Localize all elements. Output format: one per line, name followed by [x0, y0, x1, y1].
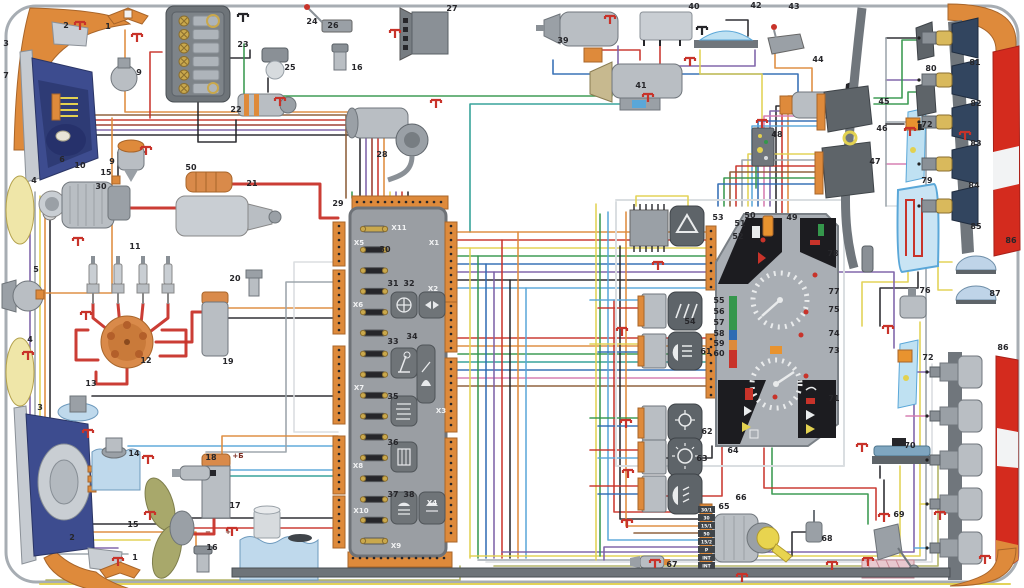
pin — [443, 557, 446, 560]
pin — [917, 36, 920, 39]
plug-terminal — [116, 256, 120, 264]
callout-21-starter: 21 — [246, 179, 258, 188]
pin — [356, 201, 359, 204]
terminal-label-50: 50 — [703, 532, 709, 538]
callout-33-relay: 33 — [387, 337, 398, 346]
pin — [338, 419, 341, 422]
callout-79-heated-rear-window: 79 — [921, 176, 933, 185]
pin — [450, 281, 453, 284]
pin — [338, 391, 341, 394]
pin — [450, 239, 453, 242]
callout-31-relay: 31 — [387, 279, 399, 288]
callout-73-gauge: 73 — [828, 346, 839, 355]
callout-9-sensor: 9 — [109, 157, 115, 166]
connector-label-X8: X8 — [353, 462, 363, 470]
text-label: +Б — [232, 452, 243, 460]
callout-2-front-parking-lamp: 2 — [69, 533, 75, 542]
pin — [338, 453, 341, 456]
fuse-end — [360, 518, 365, 523]
pin — [338, 534, 341, 537]
horn-disc-1 — [6, 176, 34, 244]
callout-23-fuse-box: 23 — [237, 40, 248, 49]
pin — [450, 476, 453, 479]
bulb — [936, 115, 952, 129]
pin — [338, 499, 341, 502]
pin — [338, 280, 341, 283]
plug-terminal — [166, 256, 170, 264]
pin — [710, 286, 713, 289]
callout-1-underhood-lamp: 1 — [105, 22, 111, 31]
pin — [925, 502, 928, 505]
terminal-label-15/1: 15/1 — [701, 524, 712, 530]
connector-label-X6: X6 — [353, 301, 363, 309]
callout-55-telltale: 55 — [713, 296, 725, 305]
pin — [338, 246, 341, 249]
pin — [352, 557, 355, 560]
callout-65-fog-lamp-switch: 65 — [718, 502, 730, 511]
plug-terminal — [141, 256, 145, 264]
pin — [925, 370, 928, 373]
callout-72-side-repeater: 72 — [921, 120, 932, 129]
pin — [710, 338, 713, 341]
fuse-end — [382, 414, 387, 419]
callout-84-bulb: 84 — [968, 181, 980, 190]
callout-2-front-parking-lamp: 2 — [63, 21, 69, 30]
pin — [429, 557, 432, 560]
pin — [419, 201, 422, 204]
pin — [338, 467, 341, 470]
callout-38-relay: 38 — [403, 490, 415, 499]
callout-30-terminal-30: 30 — [95, 182, 107, 191]
callout-43-switch: 43 — [788, 2, 799, 11]
fuse-end — [360, 310, 365, 315]
ground-bus-bar — [232, 568, 950, 577]
pin — [450, 518, 453, 521]
pin — [338, 527, 341, 530]
terminal-label-30/1: 30/1 — [701, 508, 712, 514]
pin — [338, 446, 341, 449]
connector-label-X3: X3 — [436, 407, 446, 415]
pin — [338, 520, 341, 523]
pin — [450, 455, 453, 458]
callout-14-fuel-level-sender: 14 — [128, 449, 140, 458]
pin — [450, 288, 453, 291]
fuse-end — [360, 268, 365, 273]
callout-44-rear-wiper-motor: 44 — [812, 55, 824, 64]
pin — [338, 315, 341, 318]
bulb-housing — [958, 444, 982, 476]
pin — [710, 386, 713, 389]
callout-70-dome-lamp: 70 — [904, 441, 916, 450]
plug-body — [89, 264, 97, 284]
telltale-49 — [763, 216, 773, 236]
callout-85-bulb: 85 — [970, 222, 982, 231]
bulb-socket — [922, 158, 936, 170]
connector-label-X5: X5 — [354, 239, 364, 247]
callout-62-heater-switch: 62 — [701, 427, 712, 436]
plug-hex — [162, 284, 174, 293]
fuse-end — [382, 351, 387, 356]
fuse-end — [360, 538, 365, 543]
pin — [370, 201, 373, 204]
callout-35-relay: 35 — [387, 392, 399, 401]
pin — [925, 546, 928, 549]
reverse-lens — [993, 146, 1019, 190]
callout-82-bulb: 82 — [970, 99, 981, 108]
pin — [917, 120, 920, 123]
pin — [710, 262, 713, 265]
pin — [338, 273, 341, 276]
callout-3-headlamp: 3 — [37, 403, 43, 412]
callout-42-dome-lamp: 42 — [750, 1, 761, 10]
text-label: + — [225, 528, 231, 536]
bulb-socket — [922, 32, 936, 44]
heated-rear-window — [898, 184, 939, 272]
pin — [338, 384, 341, 387]
reverse-lens — [997, 428, 1018, 468]
fuse-slot — [193, 70, 219, 80]
bulb-reflector — [952, 18, 978, 58]
pin — [338, 439, 341, 442]
pin — [710, 362, 713, 365]
callout-56-telltale: 56 — [713, 307, 725, 316]
fuse-end — [382, 226, 387, 231]
relay-33 — [391, 348, 417, 378]
plug-hex — [112, 284, 124, 293]
light-switch-63 — [638, 438, 702, 476]
pin — [450, 469, 453, 472]
pin — [450, 246, 453, 249]
pin — [450, 312, 453, 315]
pin — [338, 474, 341, 477]
pin — [387, 557, 390, 560]
pin — [710, 246, 713, 249]
pin — [450, 382, 453, 385]
pin — [450, 396, 453, 399]
bulb — [936, 157, 952, 171]
pin — [450, 462, 453, 465]
fuse-end — [360, 247, 365, 252]
column-connector-47 — [822, 142, 874, 198]
callout-11-spark-plugs: 11 — [129, 242, 141, 251]
fuse-end — [382, 268, 387, 273]
pin — [338, 488, 341, 491]
pin — [710, 378, 713, 381]
pin — [338, 301, 341, 304]
fuse-end — [360, 414, 365, 419]
callout-68-brake-light-switch: 68 — [821, 534, 833, 543]
callout-15-terminal-15: 15 — [100, 168, 112, 177]
fuse-end — [360, 393, 365, 398]
pin — [338, 377, 341, 380]
callout-3-headlamp: 3 — [3, 39, 9, 48]
callout-64-cluster-connector: 64 — [727, 446, 739, 455]
pin — [377, 201, 380, 204]
fuse-end — [360, 455, 365, 460]
pin — [450, 389, 453, 392]
plug-hex — [137, 284, 149, 293]
bulb — [936, 73, 952, 87]
cluster-connector — [706, 226, 716, 290]
pin — [710, 230, 713, 233]
callout-49-telltale: 49 — [786, 213, 798, 222]
pin — [338, 260, 341, 263]
callout-29-mounting-block: 29 — [332, 199, 344, 208]
callout-69-fuel-sender: 69 — [893, 510, 905, 519]
plug-body — [139, 264, 147, 284]
bulb-body — [940, 539, 958, 557]
callout-48-connector: 48 — [771, 130, 783, 139]
text-label: − — [205, 528, 211, 536]
callout-13-lamp: 13 — [85, 379, 96, 388]
pin — [338, 405, 341, 408]
pin — [338, 412, 341, 415]
bulb-housing — [958, 488, 982, 520]
bulb-housing — [958, 356, 982, 388]
cluster-corner-br — [798, 380, 836, 438]
callout-18-sensor: 18 — [205, 453, 217, 462]
pin — [338, 398, 341, 401]
pin — [450, 319, 453, 322]
ignition-coil — [202, 454, 230, 518]
pin — [366, 557, 369, 560]
connector-label-X7: X7 — [354, 384, 364, 392]
pin — [398, 201, 401, 204]
callout-16-washer-pump: 16 — [206, 543, 218, 552]
heater-fan-switch — [638, 404, 702, 442]
fuse-end — [382, 310, 387, 315]
fuse-end — [382, 289, 387, 294]
pin — [917, 204, 920, 207]
pin — [338, 363, 341, 366]
relay-32 — [419, 292, 445, 318]
pin — [710, 278, 713, 281]
pin — [384, 201, 387, 204]
fuse-end — [360, 330, 365, 335]
callout-40-regulator: 40 — [688, 2, 700, 11]
pin — [412, 201, 415, 204]
plug-body — [114, 264, 122, 284]
callout-86-tail-lamp: 86 — [997, 343, 1009, 352]
instrument-cluster — [716, 214, 838, 446]
fuse-slot — [193, 30, 219, 40]
telltale-strip — [729, 296, 737, 368]
callout-78-telltale: 78 — [827, 249, 839, 258]
pin — [450, 274, 453, 277]
bulb-tip — [930, 455, 940, 465]
pin — [338, 239, 341, 242]
pin — [710, 238, 713, 241]
fuse-slot — [193, 43, 219, 53]
callout-41-washer-motor: 41 — [635, 81, 647, 90]
callout-6-headlamp-bulb: 6 — [59, 155, 65, 164]
fuse-end — [360, 497, 365, 502]
bulb-body — [940, 363, 958, 381]
callout-34-relay: 34 — [406, 332, 418, 341]
terminal-label-INT: INT — [702, 556, 711, 562]
pin — [450, 361, 453, 364]
callout-76-pump: 76 — [919, 286, 931, 295]
pin — [450, 326, 453, 329]
auxiliary-fuse-box — [166, 6, 230, 102]
callout-28-wiper-motor: 28 — [376, 150, 388, 159]
headlight-switch — [638, 332, 702, 370]
pin — [338, 460, 341, 463]
callout-63-light-switch: 63 — [696, 454, 707, 463]
callout-16-washer-pump: 16 — [351, 63, 363, 72]
bulb-housing — [958, 400, 982, 432]
pin — [450, 441, 453, 444]
callout-81-bulb: 81 — [969, 58, 981, 67]
column-connector-45 — [824, 86, 872, 132]
pin — [450, 253, 453, 256]
pin — [925, 458, 928, 461]
side-repeater-bottom — [898, 340, 918, 408]
callout-54-heated-window-switch: 54 — [684, 317, 696, 326]
callout-53-hazard-switch: 53 — [712, 213, 723, 222]
pin — [710, 270, 713, 273]
relay-bracket-27 — [400, 8, 448, 60]
pin — [359, 557, 362, 560]
starter-solenoid — [186, 172, 232, 192]
pin — [338, 253, 341, 256]
pin — [338, 232, 341, 235]
callout-15-radiator-fan: 15 — [127, 520, 139, 529]
block-connector — [333, 222, 345, 266]
callout-26-switch: 26 — [327, 21, 339, 30]
callout-50-starter-terminal-50: 50 — [185, 163, 197, 172]
bulb-housing — [958, 532, 982, 564]
callout-61-light-switch: 61 — [700, 347, 712, 356]
pin — [436, 557, 439, 560]
bulb-tip — [930, 367, 940, 377]
callout-74-screw: 74 — [828, 329, 840, 338]
fuse-slot — [193, 57, 219, 67]
callout-57-telltale: 57 — [713, 318, 724, 327]
telltale-orange — [770, 346, 782, 354]
terminal-label-30: 30 — [703, 516, 709, 522]
plug-body — [164, 264, 172, 284]
pin — [450, 417, 453, 420]
pin — [422, 557, 425, 560]
ignition-relay — [202, 292, 228, 356]
plug-hex — [87, 284, 99, 293]
pin — [450, 532, 453, 535]
fog-lamp-switch — [638, 474, 702, 514]
pin — [450, 424, 453, 427]
pin — [450, 490, 453, 493]
pin — [917, 78, 920, 81]
headlamp-bulb — [56, 131, 70, 141]
pin — [450, 232, 453, 235]
terminal-label-INT: INT — [702, 564, 711, 570]
callout-32-relay: 32 — [403, 279, 414, 288]
callout-67-sensor: 67 — [666, 560, 677, 569]
callout-30-fuse: 30 — [379, 245, 391, 254]
bulb-reflector — [952, 144, 978, 184]
callout-4-horn: 4 — [31, 176, 37, 185]
relay-22 — [238, 94, 296, 116]
connector-label-X2: X2 — [428, 285, 438, 293]
relay-34 — [417, 345, 435, 403]
pin — [373, 557, 376, 560]
pin — [440, 201, 443, 204]
relay-38 — [419, 492, 445, 524]
bulb-body — [940, 407, 958, 425]
callout-75-screw: 75 — [828, 305, 840, 314]
wiring-diagram: 1237699232425221015305021454112012191314… — [0, 0, 1024, 588]
callout-87-license-plate-lamp: 87 — [989, 289, 1000, 298]
pin — [338, 322, 341, 325]
callout-52-telltale: 52 — [732, 232, 743, 241]
pin — [450, 511, 453, 514]
callout-47-column-connector: 47 — [869, 157, 880, 166]
hazard-switch — [670, 206, 704, 246]
callout-46-column-connector: 46 — [876, 124, 888, 133]
connector-label-X10: X10 — [353, 507, 368, 515]
pin — [450, 504, 453, 507]
callout-19-ignition-coil: 19 — [222, 357, 234, 366]
pin — [450, 333, 453, 336]
pin — [338, 329, 341, 332]
pin — [710, 254, 713, 257]
callout-66-ignition-switch: 66 — [735, 493, 747, 502]
bulb-tip — [930, 411, 940, 421]
pin — [450, 525, 453, 528]
callout-10-alternator: 10 — [74, 161, 86, 170]
bulb-tip — [930, 543, 940, 553]
callout-58-telltale: 58 — [713, 329, 725, 338]
flasher-relay — [630, 210, 668, 246]
fuse-end — [360, 289, 365, 294]
fuse-end — [382, 476, 387, 481]
callout-17-washer-reservoir: 17 — [229, 501, 240, 510]
callout-20-plug: 20 — [229, 274, 241, 283]
pin — [338, 294, 341, 297]
pin — [710, 394, 713, 397]
pin — [401, 557, 404, 560]
terminal-label-15/2: 15/2 — [701, 540, 712, 546]
fuse-end — [360, 226, 365, 231]
connector-label-X1: X1 — [429, 239, 439, 247]
pin — [338, 287, 341, 290]
callout-59-telltale: 59 — [713, 339, 725, 348]
pin — [338, 541, 341, 544]
headlamp-plug — [52, 94, 60, 120]
pin — [338, 349, 341, 352]
fuse-end — [360, 351, 365, 356]
fuse-end — [382, 538, 387, 543]
pin — [450, 347, 453, 350]
pin — [450, 375, 453, 378]
bulb — [936, 199, 952, 213]
callout-4-horn: 4 — [27, 335, 33, 344]
connector-label-X4: X4 — [427, 499, 437, 507]
connector-label-X9: X9 — [391, 542, 401, 550]
pin — [338, 308, 341, 311]
callout-77-gauge: 77 — [828, 287, 839, 296]
callout-24-switch: 24 — [306, 17, 318, 26]
callout-83-bulb: 83 — [970, 139, 981, 148]
callout-25-brake-fluid-sensor: 25 — [284, 63, 296, 72]
plug-terminal — [91, 256, 95, 264]
pin — [450, 410, 453, 413]
pin — [338, 225, 341, 228]
callout-39-heater-fan-motor: 39 — [557, 36, 569, 45]
washer-pump-16-top — [332, 44, 348, 70]
pin — [394, 557, 397, 560]
horn-snail — [2, 280, 44, 312]
